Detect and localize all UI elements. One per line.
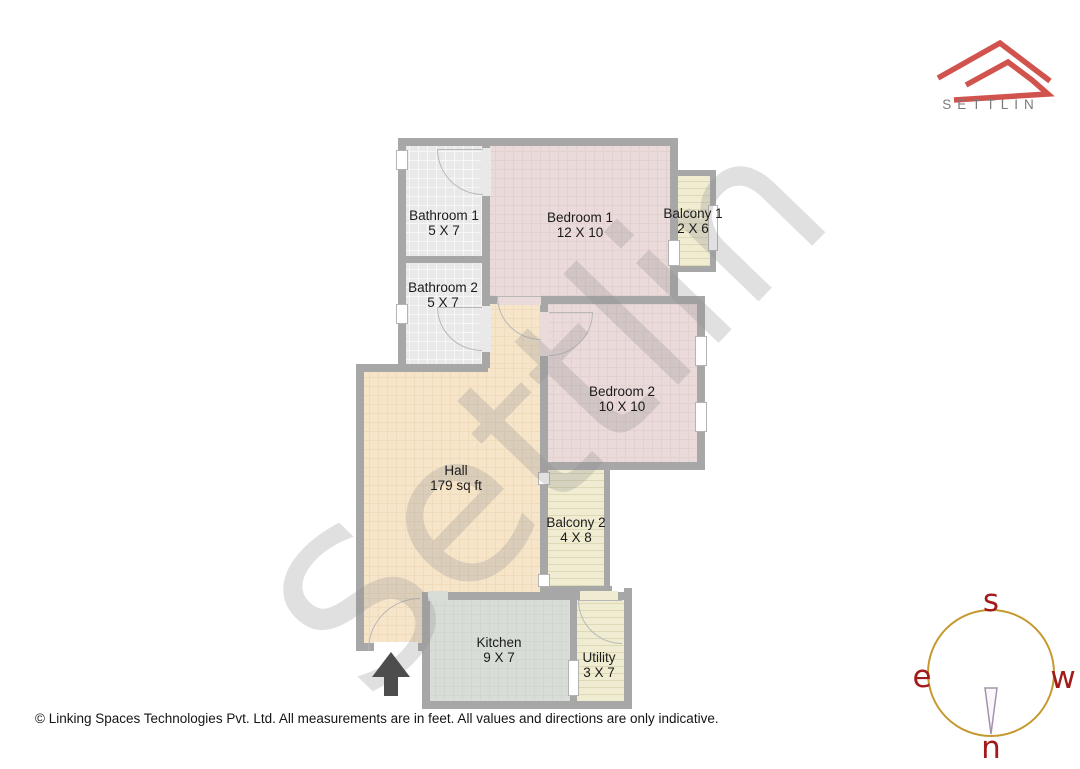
footer-disclaimer: © Linking Spaces Technologies Pvt. Ltd. … [35, 711, 719, 726]
room-label-utility: Utility 3 X 7 [583, 650, 616, 680]
room-label-bathroom1: Bathroom 1 5 X 7 [409, 208, 479, 238]
room-name: Balcony 1 [663, 206, 722, 221]
room-dims: 12 X 10 [547, 225, 613, 240]
compass-letter-east: e [912, 659, 931, 695]
compass-needle-icon [985, 688, 997, 734]
floor-plan-page: { "brand": { "logo_text": "SETTLIN", "lo… [0, 0, 1080, 764]
wall [422, 701, 632, 709]
room-dims: 4 X 8 [546, 530, 605, 545]
wall [356, 364, 364, 651]
room-dims: 5 X 7 [409, 223, 479, 238]
settlin-logo-text: SETTLIN [942, 97, 1040, 112]
wall [422, 592, 430, 709]
room-dims: 2 X 6 [663, 221, 722, 236]
room-label-kitchen: Kitchen 9 X 7 [476, 635, 521, 665]
compass: s e w n [905, 578, 1080, 764]
room-label-balcony2: Balcony 2 4 X 8 [546, 515, 605, 545]
room-name: Bedroom 1 [547, 210, 613, 225]
room-label-bedroom1: Bedroom 1 12 X 10 [547, 210, 613, 240]
compass-letter-north: n [981, 730, 1001, 766]
window [538, 472, 550, 485]
room-dims: 10 X 10 [589, 399, 655, 414]
room-name: Bedroom 2 [589, 384, 655, 399]
door-gap-kitchen [428, 591, 448, 601]
entrance-arrow-icon [372, 652, 410, 696]
room-label-bedroom2: Bedroom 2 10 X 10 [589, 384, 655, 414]
room-label-bathroom2: Bathroom 2 5 X 7 [408, 280, 478, 310]
room-name: Balcony 2 [546, 515, 605, 530]
window [695, 336, 707, 366]
room-name: Bathroom 1 [409, 208, 479, 223]
wall [624, 588, 632, 709]
window [396, 304, 408, 324]
room-label-hall: Hall 179 sq ft [430, 463, 482, 493]
window [396, 150, 408, 170]
room-name: Bathroom 2 [408, 280, 478, 295]
balcony1-opening [668, 240, 680, 266]
window [695, 402, 707, 432]
wall [398, 256, 488, 263]
room-name: Utility [583, 650, 616, 665]
wall [676, 266, 716, 272]
wall [697, 298, 705, 470]
window [568, 660, 579, 696]
wall [398, 138, 678, 146]
room-dims: 9 X 7 [476, 650, 521, 665]
door-gap-bathroom2 [481, 306, 491, 352]
compass-letter-south: s [983, 583, 999, 619]
wall [540, 462, 705, 470]
compass-letter-west: w [1050, 660, 1075, 696]
wall [356, 364, 488, 372]
room-dims: 3 X 7 [583, 665, 616, 680]
room-name: Hall [430, 463, 482, 478]
room-name: Kitchen [476, 635, 521, 650]
window [538, 574, 550, 587]
room-label-balcony1: Balcony 1 2 X 6 [663, 206, 722, 236]
room-dims: 179 sq ft [430, 478, 482, 493]
room-dims: 5 X 7 [408, 295, 478, 310]
